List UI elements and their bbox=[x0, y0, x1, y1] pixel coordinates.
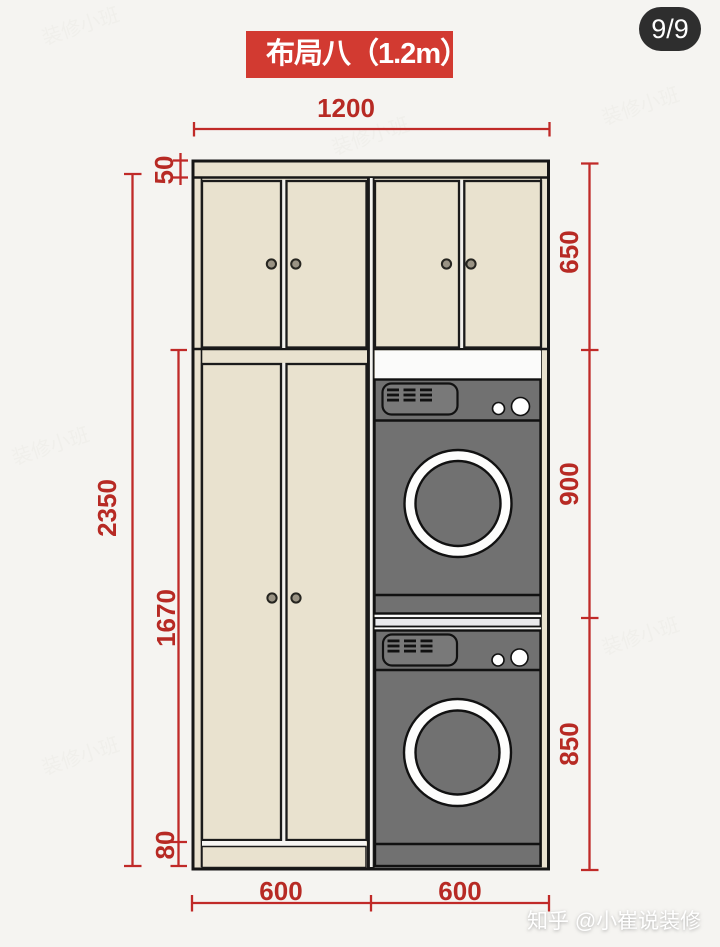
svg-text:900: 900 bbox=[554, 462, 584, 505]
svg-text:80: 80 bbox=[150, 831, 180, 860]
svg-text:850: 850 bbox=[554, 722, 584, 765]
svg-text:50: 50 bbox=[149, 156, 179, 185]
svg-text:2350: 2350 bbox=[92, 479, 122, 537]
svg-text:600: 600 bbox=[438, 876, 481, 906]
svg-text:600: 600 bbox=[259, 876, 302, 906]
svg-text:1200: 1200 bbox=[317, 93, 375, 123]
svg-text:1670: 1670 bbox=[151, 589, 181, 647]
svg-text:650: 650 bbox=[554, 230, 584, 273]
